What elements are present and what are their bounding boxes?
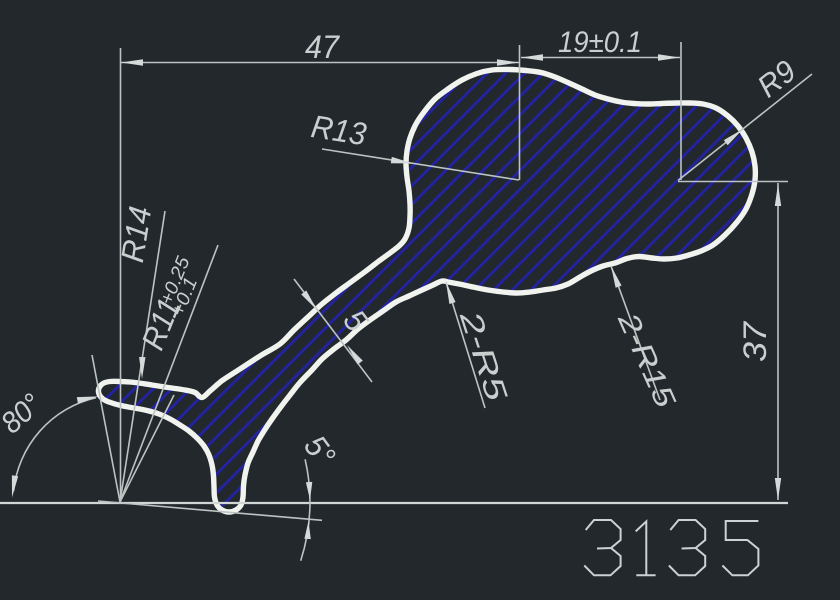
svg-text:47: 47 [305,29,340,65]
svg-text:37: 37 [737,321,773,362]
svg-text:19±0.1: 19±0.1 [558,26,642,59]
